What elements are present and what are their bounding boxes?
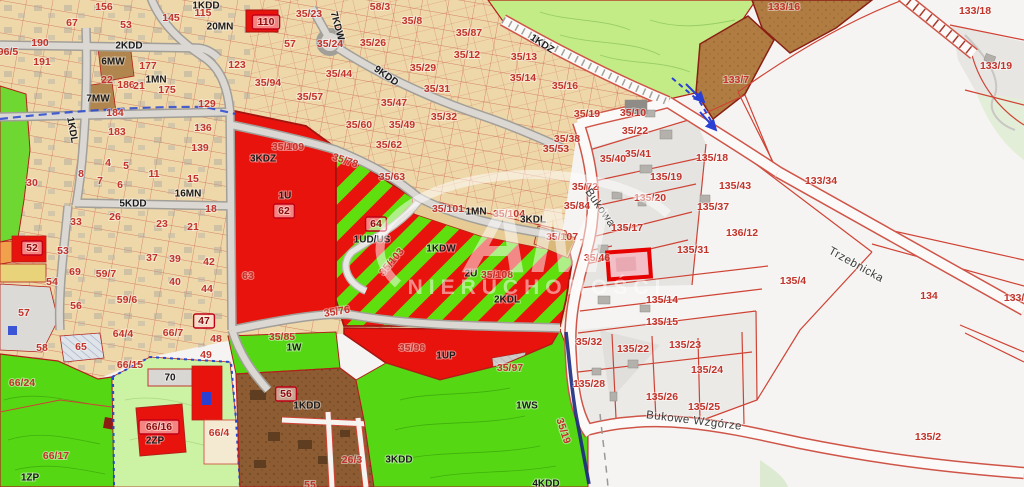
parcel-label: 26/3 xyxy=(342,454,363,466)
parcel-label: 135/19 xyxy=(650,171,682,183)
parcel-label: 35/57 xyxy=(297,91,323,103)
parcel-label: 30 xyxy=(26,177,38,189)
parcel-label: 64/4 xyxy=(113,328,134,340)
parcel-label: 42 xyxy=(203,256,215,268)
parcel-label: 35/101 xyxy=(432,203,464,215)
parcel-label: 57 xyxy=(18,307,30,319)
parcel-label: 135/4 xyxy=(780,275,806,287)
parcel-label: 190 xyxy=(31,37,49,49)
parcel-label: 135/43 xyxy=(719,180,751,192)
parcel-label: 15 xyxy=(187,173,199,185)
parcel-label: 35/94 xyxy=(255,77,281,89)
parcel-label: 70 xyxy=(164,373,176,384)
parcel-label: 66/7 xyxy=(163,327,184,339)
parcel-label: 35/49 xyxy=(389,119,415,131)
parcel-label: 21 xyxy=(187,221,199,233)
parcel-label: 35/47 xyxy=(381,97,407,109)
parcel-label: 49 xyxy=(200,349,212,361)
parcel-label: 18 xyxy=(205,203,217,215)
parcel-label: 47 xyxy=(198,315,210,327)
parcel-label: 53 xyxy=(57,245,69,257)
parcel-label: 133/3 xyxy=(1004,292,1024,304)
parcel-label: 59/7 xyxy=(96,268,117,280)
parcel-label: 4 xyxy=(105,157,111,169)
parcel-label: 35/40 xyxy=(600,153,626,165)
parcel-label: 65 xyxy=(75,341,87,353)
parcel-label: 3KDZ xyxy=(250,154,276,165)
parcel-label: 2ZP xyxy=(146,436,165,447)
parcel-label: 35/97 xyxy=(497,362,523,374)
parcel-label: 1WS xyxy=(516,401,538,412)
parcel-label: 135/25 xyxy=(688,401,720,413)
parcel-label: 156 xyxy=(95,1,113,13)
parcel-label: 26 xyxy=(109,211,121,223)
parcel-label: 54 xyxy=(46,276,58,288)
parcel-label: 35/23 xyxy=(296,8,322,20)
parcel-label: 135/24 xyxy=(691,364,723,376)
parcel-label: 56 xyxy=(70,300,82,312)
parcel-label: 115 xyxy=(195,7,212,19)
parcel-label: 35/85 xyxy=(269,331,295,343)
parcel-label: 35/29 xyxy=(410,62,436,74)
parcel-label: 6MW xyxy=(101,57,125,68)
parcel-label: 20MN xyxy=(207,22,234,33)
parcel-label: 5KDD xyxy=(119,199,146,210)
parcel-label: 1ZP xyxy=(21,473,40,484)
parcel-label: 35/13 xyxy=(511,51,537,63)
parcel-label: 133/19 xyxy=(980,60,1012,72)
parcel-label: 57 xyxy=(284,38,296,50)
parcel-label: 5 xyxy=(123,160,129,172)
zoning-map-viewport[interactable]: 1561KDD115675314520MN19096/52KDD1916MW17… xyxy=(0,0,1024,487)
parcel-label: 67 xyxy=(66,17,78,29)
parcel-label: 184 xyxy=(106,107,124,119)
parcel-label: 135/17 xyxy=(611,222,643,234)
parcel-label: 136 xyxy=(194,122,212,134)
parcel-label: 66/24 xyxy=(9,377,35,389)
parcel-label: 4KDD xyxy=(532,479,559,487)
parcel-label: 7MW xyxy=(86,94,110,105)
parcel-label: 58/3 xyxy=(370,1,391,13)
parcel-label: 66/15 xyxy=(117,359,143,371)
parcel-label: 66/4 xyxy=(209,427,230,439)
parcel-label: 2KDD xyxy=(115,41,142,52)
parcel-label: 62 xyxy=(278,205,290,217)
parcel-label: 1KDD xyxy=(293,401,320,412)
parcel-label: 139 xyxy=(191,142,209,154)
parcel-label: 58 xyxy=(36,342,48,354)
parcel-label: 64 xyxy=(370,218,382,230)
parcel-label: 66/17 xyxy=(43,450,69,462)
parcel-label: 35/63 xyxy=(379,171,405,183)
parcel-label: 35/10 xyxy=(620,107,646,119)
parcel-label: 35/109 xyxy=(272,141,304,153)
parcel-label: 35/41 xyxy=(625,148,651,160)
parcel-label: 7 xyxy=(97,175,103,187)
parcel-label: 133/18 xyxy=(959,5,991,17)
parcel-label: 135/26 xyxy=(646,391,678,403)
parcel-label: 35/22 xyxy=(622,125,648,137)
parcel-label: 16MN xyxy=(175,189,202,200)
parcel-label: 135/22 xyxy=(617,343,649,355)
parcel-label: 23 xyxy=(156,218,168,230)
brown-zone-56 xyxy=(236,368,374,487)
parcel-label: 175 xyxy=(158,84,176,96)
parcel-label: 6 xyxy=(117,179,123,191)
parcel-label: 35/53 xyxy=(543,143,569,155)
parcel-label: 35/14 xyxy=(510,72,536,84)
parcel-label: 1UP xyxy=(436,351,456,362)
subject-property-highlight[interactable] xyxy=(607,250,651,280)
parcel-label: 35/60 xyxy=(346,119,372,131)
parcel-label: 135/2 xyxy=(915,431,941,443)
parcel-label: 40 xyxy=(169,276,181,288)
parcel-label: 35/31 xyxy=(424,83,450,95)
parcel-label: 69 xyxy=(69,266,81,278)
parcel-label: 8 xyxy=(78,168,84,180)
parcel-label: 56 xyxy=(280,388,292,400)
parcel-label: 133/16 xyxy=(768,1,800,13)
parcel-label: 11 xyxy=(148,168,159,180)
parcel-label: 1KDW xyxy=(426,244,456,255)
parcel-label: 35/8 xyxy=(402,15,423,27)
parcel-label: 21 xyxy=(133,80,145,92)
zoning-map-canvas[interactable]: 1561KDD115675314520MN19096/52KDD1916MW17… xyxy=(0,0,1024,487)
parcel-label: 35/16 xyxy=(552,80,578,92)
parcel-label: 177 xyxy=(139,60,157,72)
parcel-label: 135/28 xyxy=(573,378,605,390)
parcel-label: 136/12 xyxy=(726,227,758,239)
parcel-label: 55 xyxy=(304,479,316,487)
parcel-label: 134 xyxy=(920,290,938,302)
parcel-label: 63 xyxy=(242,270,254,282)
parcel-label: 35/32 xyxy=(431,111,457,123)
parcel-label: 110 xyxy=(258,16,275,28)
parcel-label: 1U xyxy=(279,191,292,202)
parcel-label: 35/62 xyxy=(376,139,402,151)
parcel-label: 44 xyxy=(201,283,213,295)
parcel-label: 3KDD xyxy=(385,455,412,466)
parcel-label: 33 xyxy=(70,216,82,228)
parcel-label: 123 xyxy=(228,59,246,71)
parcel-label: 52 xyxy=(26,242,38,254)
parcel-label: 135/15 xyxy=(646,316,678,328)
parcel-label: 183 xyxy=(108,126,126,138)
parcel-label: 145 xyxy=(162,12,180,24)
parcel-label: 96/5 xyxy=(0,46,18,58)
parcel-label: 133/34 xyxy=(805,175,837,187)
watermark-subtitle: NIERUCHOMOŚCI xyxy=(408,275,667,299)
parcel-label: 129 xyxy=(198,98,216,110)
parcel-label: 53 xyxy=(120,19,132,31)
parcel-label: 35/12 xyxy=(454,49,480,61)
parcel-label: 66/16 xyxy=(146,421,172,433)
parcel-label: 191 xyxy=(33,56,51,68)
parcel-label: 39 xyxy=(169,253,181,265)
parcel-label: 37 xyxy=(146,252,158,264)
parcel-label: 35/96 xyxy=(399,342,425,354)
parcel-label: 135/23 xyxy=(669,339,701,351)
parcel-label: 35/32 xyxy=(576,336,602,348)
parcel-label: 133/7 xyxy=(723,74,749,86)
parcel-label: 1W xyxy=(287,343,303,354)
parcel-label: 35/87 xyxy=(456,27,482,39)
parcel-label: 35/44 xyxy=(326,68,352,80)
parcel-label: 35/26 xyxy=(360,37,386,49)
parcel-label: 135/31 xyxy=(677,244,709,256)
parcel-label: 48 xyxy=(210,333,222,345)
parcel-label: 35/19 xyxy=(574,108,600,120)
parcel-label: 59/6 xyxy=(117,294,138,306)
parcel-label: 135/37 xyxy=(697,201,729,213)
parcel-label: 135/18 xyxy=(696,152,728,164)
parcel-label: 22 xyxy=(101,74,113,86)
